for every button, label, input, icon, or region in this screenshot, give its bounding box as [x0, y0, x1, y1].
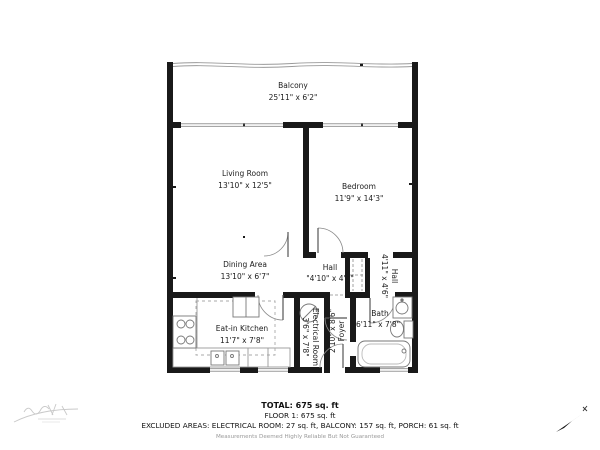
window — [258, 369, 288, 372]
room-label-hall: Hall — [323, 263, 337, 272]
room-dims-electrical-room: 3'6" x 7'8" — [301, 317, 310, 356]
total-area-text: TOTAL: 675 sq. ft — [0, 401, 600, 410]
room-label-dining-area: Dining Area — [223, 260, 267, 269]
wall — [341, 252, 368, 258]
wall — [283, 292, 330, 298]
balcony-railing — [173, 63, 412, 68]
room-dims-dining-area: 13'10" x 6'7" — [221, 272, 270, 281]
room-dims-hall-right: 4'11" x 4'6" — [380, 254, 389, 298]
wall-tick — [173, 186, 176, 188]
window — [210, 369, 240, 372]
room-label-hall-right: Hall — [390, 269, 399, 283]
room-label-living-room: Living Room — [222, 169, 268, 178]
sink — [226, 351, 239, 365]
room-label-electrical-room: Electrical Room — [311, 308, 320, 366]
room-label-bath: Bath — [371, 309, 389, 318]
wall — [350, 356, 356, 373]
wall — [167, 122, 173, 373]
excluded-areas-text: EXCLUDED AREAS: ELECTRICAL ROOM: 27 sq. … — [0, 421, 600, 430]
room-dims-bedroom: 11'9" x 14'3" — [335, 194, 384, 203]
door-swing — [258, 295, 283, 320]
sink — [211, 351, 224, 365]
room-label-balcony: Balcony — [278, 81, 308, 90]
bathtub — [358, 341, 410, 367]
room-dims-foyer: 2'10" x 8'6" — [328, 309, 337, 353]
window — [181, 124, 283, 127]
room-label-bedroom: Bedroom — [342, 182, 376, 191]
room-dims-balcony: 25'11" x 6'2" — [269, 93, 318, 102]
wall-tick — [243, 236, 245, 238]
door-swing — [318, 228, 343, 253]
bathroom-sink-faucet — [401, 299, 403, 301]
wall — [412, 62, 418, 128]
wall — [167, 62, 173, 128]
wall — [303, 252, 316, 258]
wall — [240, 367, 258, 373]
wall — [393, 252, 418, 258]
room-label-foyer: Foyer — [337, 320, 346, 342]
floor-area-text: FLOOR 1: 675 sq. ft — [0, 411, 600, 420]
wall-tick — [173, 277, 176, 279]
room-dims-kitchen: 11'7" x 7'8" — [220, 336, 264, 345]
plan-summary: TOTAL: 675 sq. ft FLOOR 1: 675 sq. ft EX… — [0, 401, 600, 440]
floor-plan-drawing: Balcony 25'11" x 6'2" Living Room 13'10"… — [0, 0, 600, 450]
toilet-tank — [404, 321, 413, 338]
wall-tick — [409, 183, 412, 185]
door-swing — [264, 232, 288, 257]
disclaimer-text: Measurements Deemed Highly Reliable But … — [0, 434, 600, 440]
room-label-kitchen: Eat-in Kitchen — [216, 324, 269, 333]
window — [323, 124, 398, 127]
window — [380, 369, 408, 372]
wall — [294, 292, 300, 373]
floor-plan-page: Balcony 25'11" x 6'2" Living Room 13'10"… — [0, 0, 600, 450]
wall — [167, 367, 210, 373]
wall — [345, 292, 370, 298]
room-dims-living-room: 13'10" x 12'5" — [218, 181, 272, 190]
wall — [288, 367, 322, 373]
wall — [365, 258, 370, 292]
wall — [303, 122, 309, 258]
wall — [408, 367, 418, 373]
bath-fixtures — [358, 297, 413, 367]
room-dims-bath: 6'11" x 7'8" — [356, 320, 400, 329]
room-dims-hall: "4'10" x 4'5" — [306, 274, 354, 283]
